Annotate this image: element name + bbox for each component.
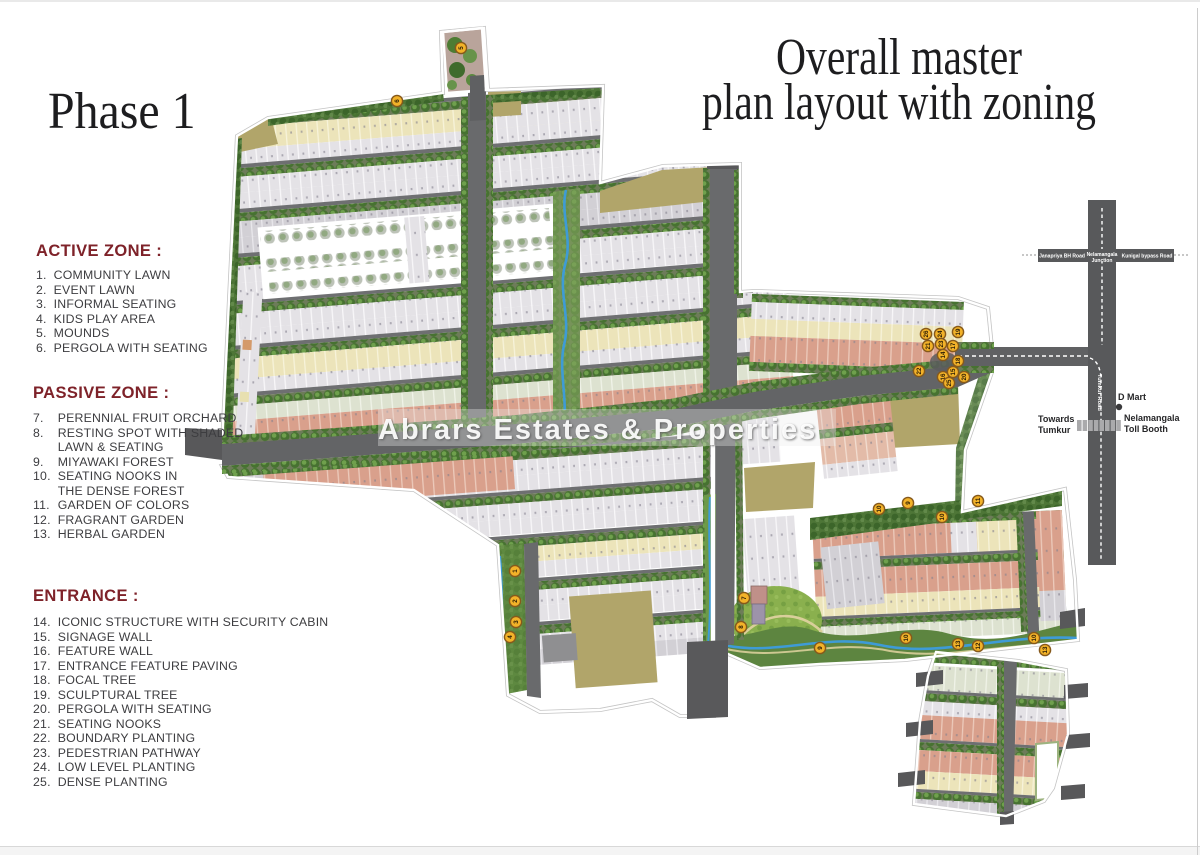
svg-text:9: 9 [905,501,912,505]
svg-text:20: 20 [961,373,968,380]
svg-text:Janapriya BH Road: Janapriya BH Road [1039,254,1085,260]
svg-text:5: 5 [458,46,465,50]
svg-text:Tumkur Road: Tumkur Road [1096,374,1102,411]
svg-text:19: 19 [955,328,962,335]
svg-text:17: 17 [950,342,957,349]
svg-text:4: 4 [507,635,514,639]
svg-text:8: 8 [738,625,745,629]
svg-text:10: 10 [876,505,883,512]
svg-text:14: 14 [940,351,947,358]
svg-text:24: 24 [937,330,944,337]
svg-text:18: 18 [955,357,962,364]
svg-text:Junction: Junction [1092,258,1113,264]
svg-text:10: 10 [939,513,946,520]
svg-text:26: 26 [923,330,930,337]
svg-text:11: 11 [975,497,982,504]
svg-text:1: 1 [512,569,519,573]
svg-text:22: 22 [916,367,923,374]
svg-text:6: 6 [394,99,401,103]
svg-text:10: 10 [903,634,910,641]
svg-text:Kunigal bypass Road: Kunigal bypass Road [1122,254,1173,260]
svg-text:15: 15 [950,368,957,375]
svg-text:7: 7 [741,596,748,600]
svg-text:25: 25 [946,379,953,386]
svg-text:3: 3 [513,620,520,624]
svg-text:13: 13 [955,640,962,647]
svg-text:21: 21 [925,342,932,349]
svg-text:12: 12 [975,642,982,649]
svg-text:2: 2 [512,599,519,603]
svg-text:9: 9 [817,646,824,650]
svg-text:23: 23 [938,340,945,347]
svg-text:10: 10 [1031,634,1038,641]
svg-text:13: 13 [1042,646,1049,653]
